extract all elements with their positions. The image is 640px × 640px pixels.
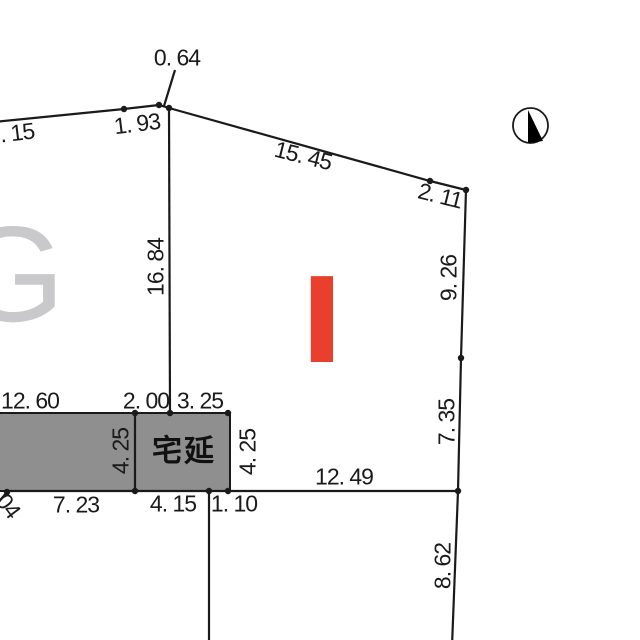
boundary-line-right-boundary bbox=[458, 190, 466, 491]
parcel-block-letter-g: G bbox=[0, 206, 65, 342]
dimension-label: 1. 93 bbox=[113, 110, 162, 138]
dimension-label: 3. 25 bbox=[177, 390, 223, 413]
dimension-label: 9. 26 bbox=[438, 255, 461, 301]
vertex-dot bbox=[458, 355, 464, 361]
vertex-dot bbox=[455, 488, 461, 494]
vertex-dot bbox=[166, 105, 172, 111]
dimension-label: 7. 35 bbox=[436, 399, 459, 445]
dimension-label: 4. 25 bbox=[237, 429, 260, 475]
vertex-dot bbox=[132, 488, 138, 494]
dimension-label: 4. 25 bbox=[110, 428, 133, 474]
boundary-line-leader-line-064 bbox=[164, 70, 175, 106]
dimension-label: 12. 60 bbox=[1, 390, 59, 413]
dimension-label: 16. 84 bbox=[145, 238, 168, 296]
boundary-line-center-vertical-boundary bbox=[169, 108, 170, 413]
dimension-label: 12. 49 bbox=[315, 466, 373, 489]
dimension-label: 2. 00 bbox=[123, 390, 169, 413]
cadastral-map-page: G I 宅延 . 151. 930. 6415. 452. 1116. 849.… bbox=[0, 0, 640, 640]
north-arrow-icon bbox=[513, 108, 548, 143]
dimension-label: 1. 10 bbox=[211, 493, 257, 516]
dimension-label: 8. 62 bbox=[432, 543, 455, 589]
dimension-label: 4. 15 bbox=[150, 493, 196, 516]
dimension-label: 0. 64 bbox=[154, 47, 200, 70]
parcel-annotation-takuen: 宅延 bbox=[152, 437, 216, 467]
parcel-marker-i: I bbox=[300, 262, 344, 380]
vertex-dot bbox=[225, 410, 231, 416]
dimension-label: 7. 23 bbox=[53, 494, 99, 517]
dimension-label: . 15 bbox=[0, 119, 35, 146]
